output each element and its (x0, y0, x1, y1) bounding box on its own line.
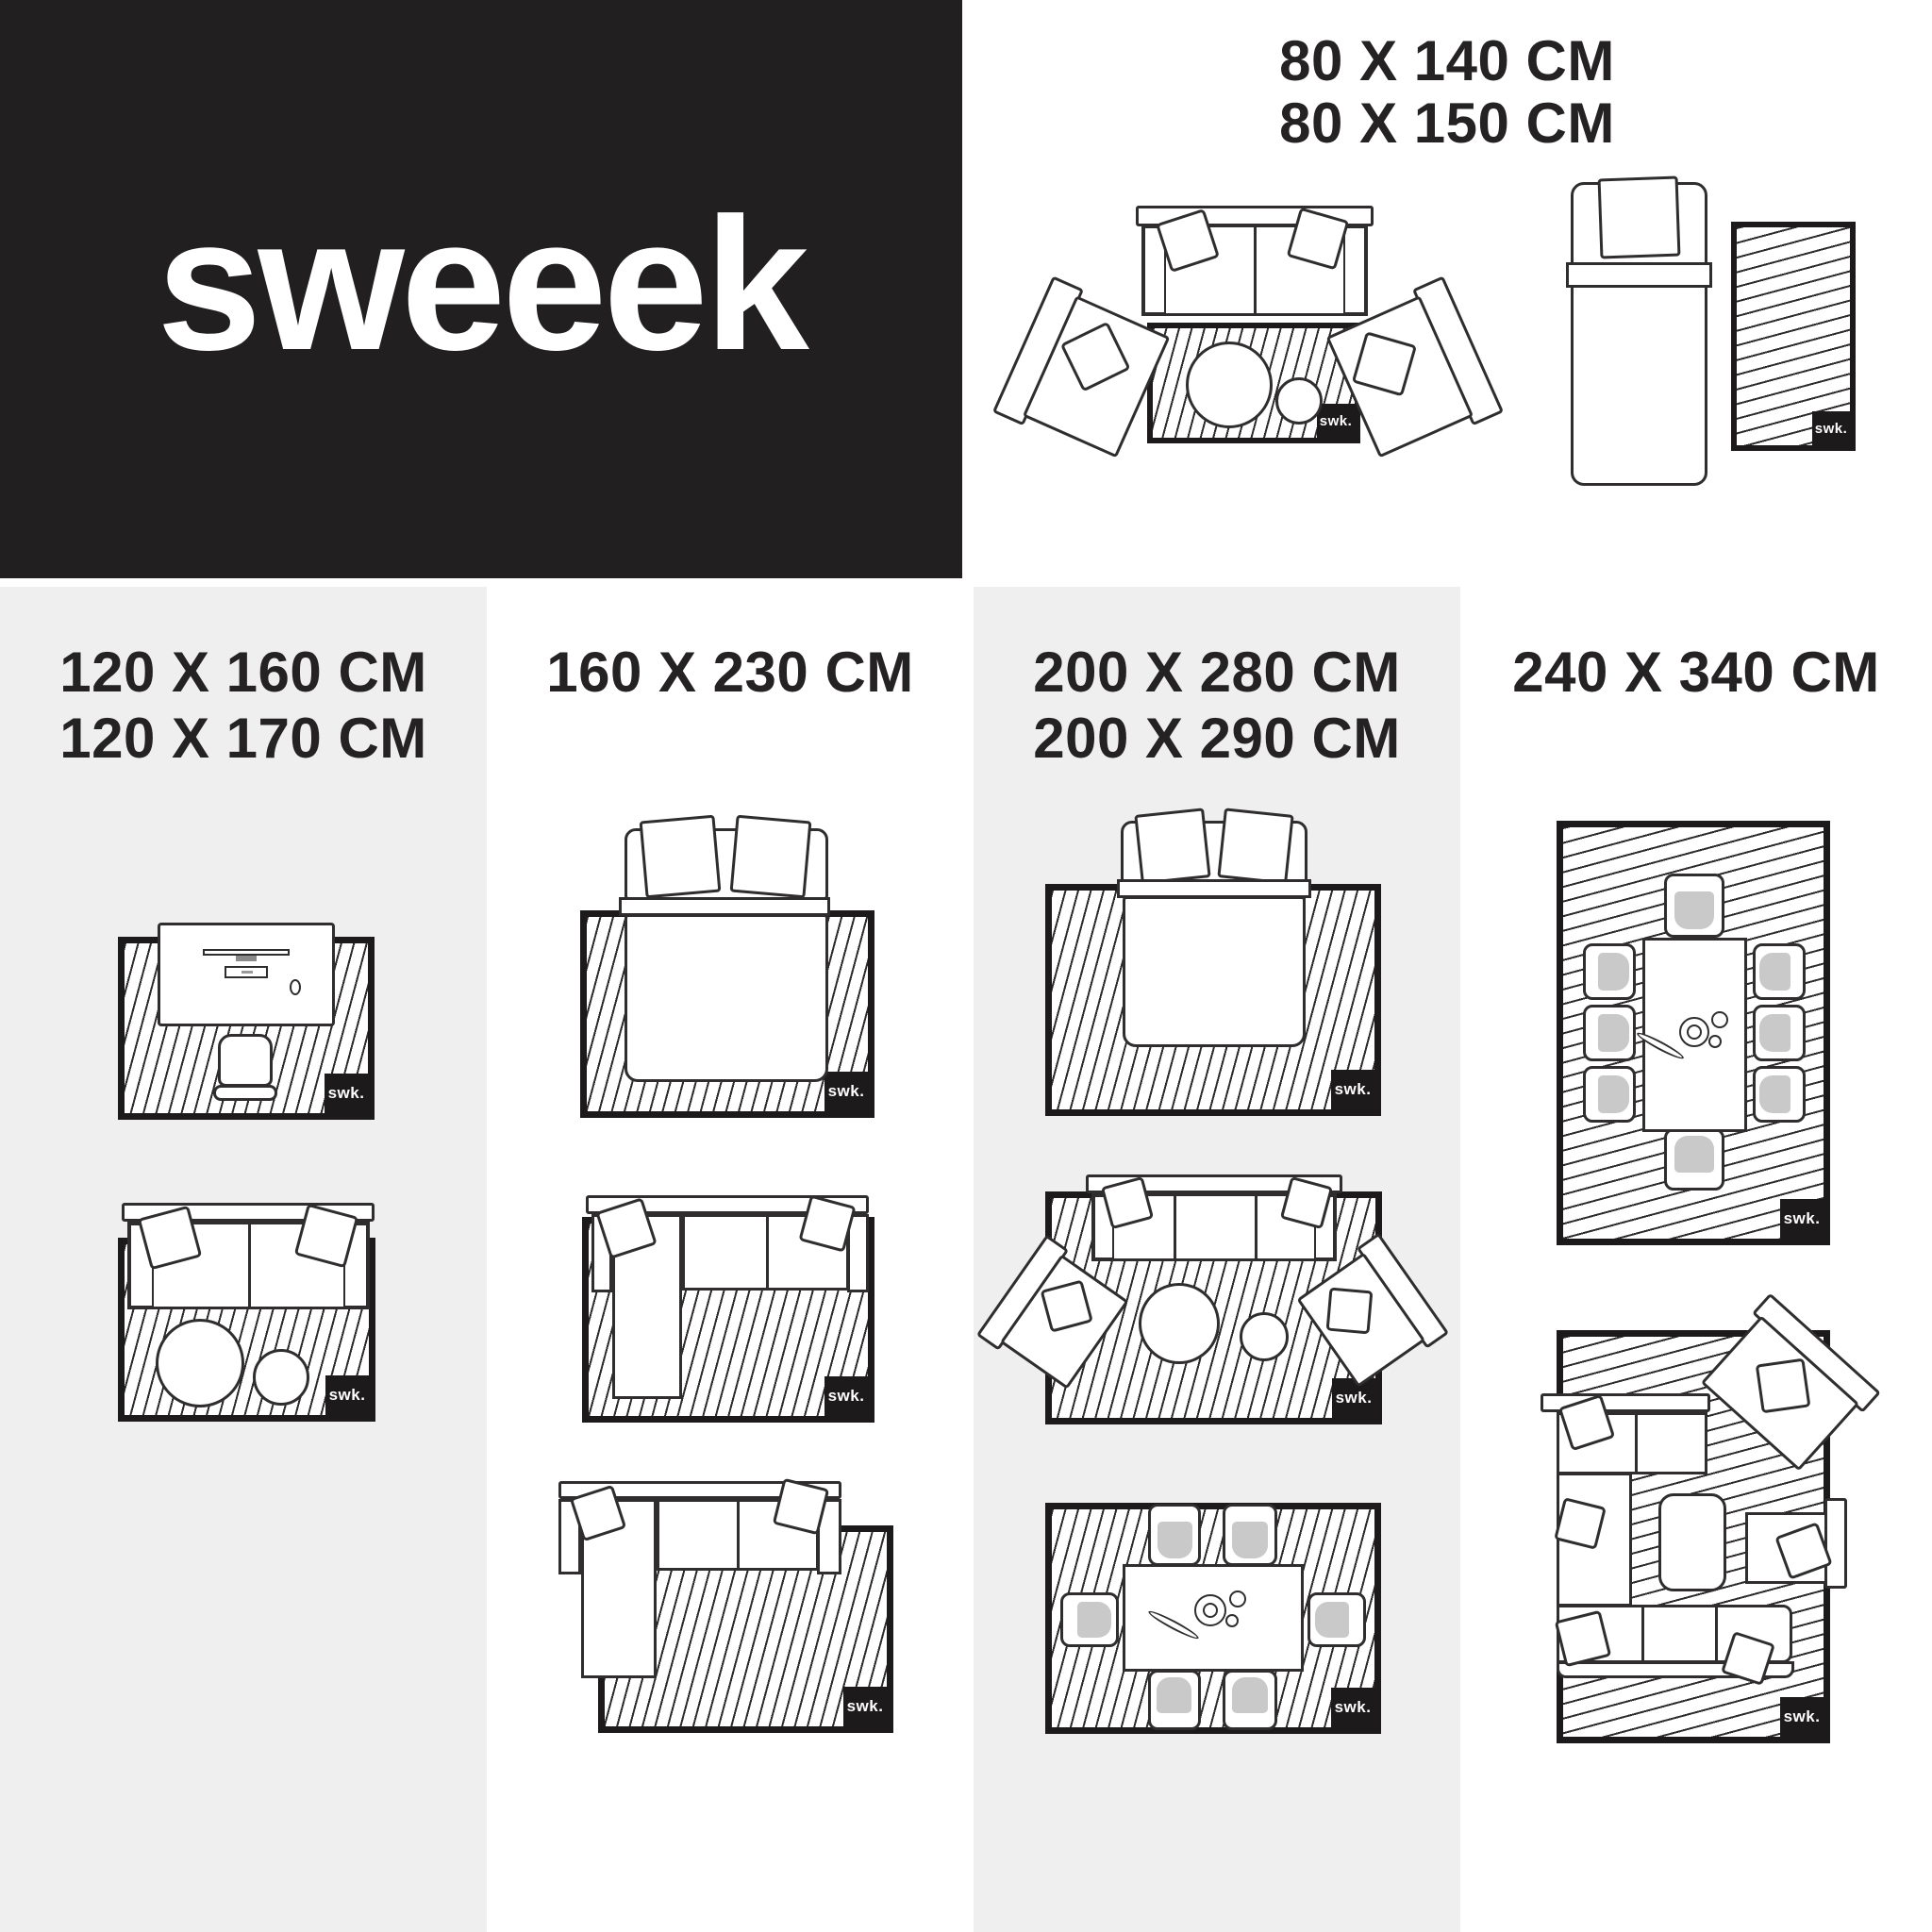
swk-badge: swk. (1331, 1688, 1374, 1727)
sofa-seat-divider (1254, 226, 1257, 314)
swk-badge: swk. (1812, 411, 1850, 445)
sofa-seat-divider (1635, 1412, 1638, 1474)
dining-chair-right (1753, 943, 1806, 1000)
swk-badge: swk. (824, 1072, 868, 1111)
sofa-seat-divider (1174, 1193, 1176, 1261)
office-chair-base (213, 1085, 277, 1101)
bed-body (625, 914, 828, 1082)
coffee-table-round-small (1275, 377, 1323, 425)
size-heading-200x290: 200 X 290 CM (974, 706, 1460, 772)
coffee-table-round-small (1240, 1312, 1289, 1361)
dining-chair-top (1664, 874, 1724, 938)
glass (1708, 1035, 1722, 1048)
glass (1711, 1011, 1728, 1028)
dining-chair-left (1583, 943, 1636, 1000)
bed-cover-band (1117, 879, 1311, 898)
swk-badge: swk. (325, 1074, 368, 1113)
plate-inner (1687, 1024, 1702, 1040)
bed-body (1123, 896, 1306, 1047)
sofa-seat-divider (1641, 1605, 1644, 1663)
coffee-table (1658, 1493, 1726, 1591)
plate-inner (1203, 1603, 1218, 1618)
sofa-seat-divider (766, 1214, 769, 1291)
dining-chair-left (1583, 1066, 1636, 1123)
swk-badge: swk. (1780, 1697, 1824, 1737)
size-heading-80x150: 80 X 150 CM (962, 91, 1932, 157)
dining-chair-right (1753, 1005, 1806, 1061)
coffee-table-round-large (1139, 1283, 1220, 1364)
mouse (290, 979, 301, 995)
dining-chair-bottom (1148, 1670, 1201, 1730)
dining-chair-left (1583, 1005, 1636, 1061)
size-heading-80x140: 80 X 140 CM (962, 28, 1932, 94)
dining-chair-right (1307, 1592, 1366, 1647)
swk-badge: swk. (824, 1376, 868, 1416)
sofa-seat-divider (1255, 1193, 1257, 1261)
size-heading-120x170: 120 X 170 CM (0, 706, 487, 772)
bed-pillow (640, 815, 722, 899)
dining-chair-right (1753, 1066, 1806, 1123)
bed-pillow (1217, 808, 1293, 884)
swk-badge: swk. (1331, 1070, 1374, 1109)
dining-chair-bottom (1223, 1670, 1277, 1730)
swk-badge: swk. (1317, 404, 1355, 438)
size-heading-200x280: 200 X 280 CM (974, 640, 1460, 706)
swk-badge: swk. (1332, 1378, 1375, 1418)
coffee-table-round-large (156, 1319, 244, 1407)
sofa-seat-divider (737, 1499, 740, 1571)
glass (1225, 1614, 1239, 1627)
dining-chair-top (1148, 1504, 1201, 1566)
swk-badge: swk. (1780, 1199, 1824, 1239)
bed-pillow (1134, 808, 1210, 884)
bed-cover-band (619, 897, 830, 916)
monitor (203, 949, 290, 956)
brand-panel: sweeek (0, 0, 962, 578)
rug-size-guide: { "brand": { "logo": "sweeek", "badge": … (0, 0, 1932, 1932)
coffee-table-round-small (253, 1349, 309, 1406)
armchair-back (1824, 1498, 1847, 1589)
bed-pillow (730, 815, 812, 899)
sofa-seat-divider (1715, 1605, 1718, 1663)
dining-chair-left (1060, 1592, 1119, 1647)
rug-80x140-bedside: swk. (1731, 222, 1856, 451)
dining-chair-bottom (1664, 1128, 1724, 1191)
bed-pillow (1598, 176, 1681, 259)
size-heading-160x230: 160 X 230 CM (487, 640, 974, 706)
monitor-stand (236, 956, 257, 961)
sofa-seat-divider (248, 1222, 251, 1309)
sofa-arm-right (1343, 226, 1366, 314)
keyboard-key (241, 971, 253, 974)
swk-badge: swk. (325, 1375, 369, 1415)
glass (1229, 1591, 1246, 1607)
size-heading-240x340: 240 X 340 CM (1460, 640, 1932, 706)
coffee-table-round-large (1186, 341, 1273, 428)
dining-chair-top (1223, 1504, 1277, 1566)
swk-badge: swk. (843, 1687, 887, 1726)
brand-logo: sweeek (157, 176, 806, 403)
bed-cover-band (1566, 262, 1712, 288)
size-heading-120x160: 120 X 160 CM (0, 640, 487, 706)
office-chair-seat (218, 1034, 273, 1087)
